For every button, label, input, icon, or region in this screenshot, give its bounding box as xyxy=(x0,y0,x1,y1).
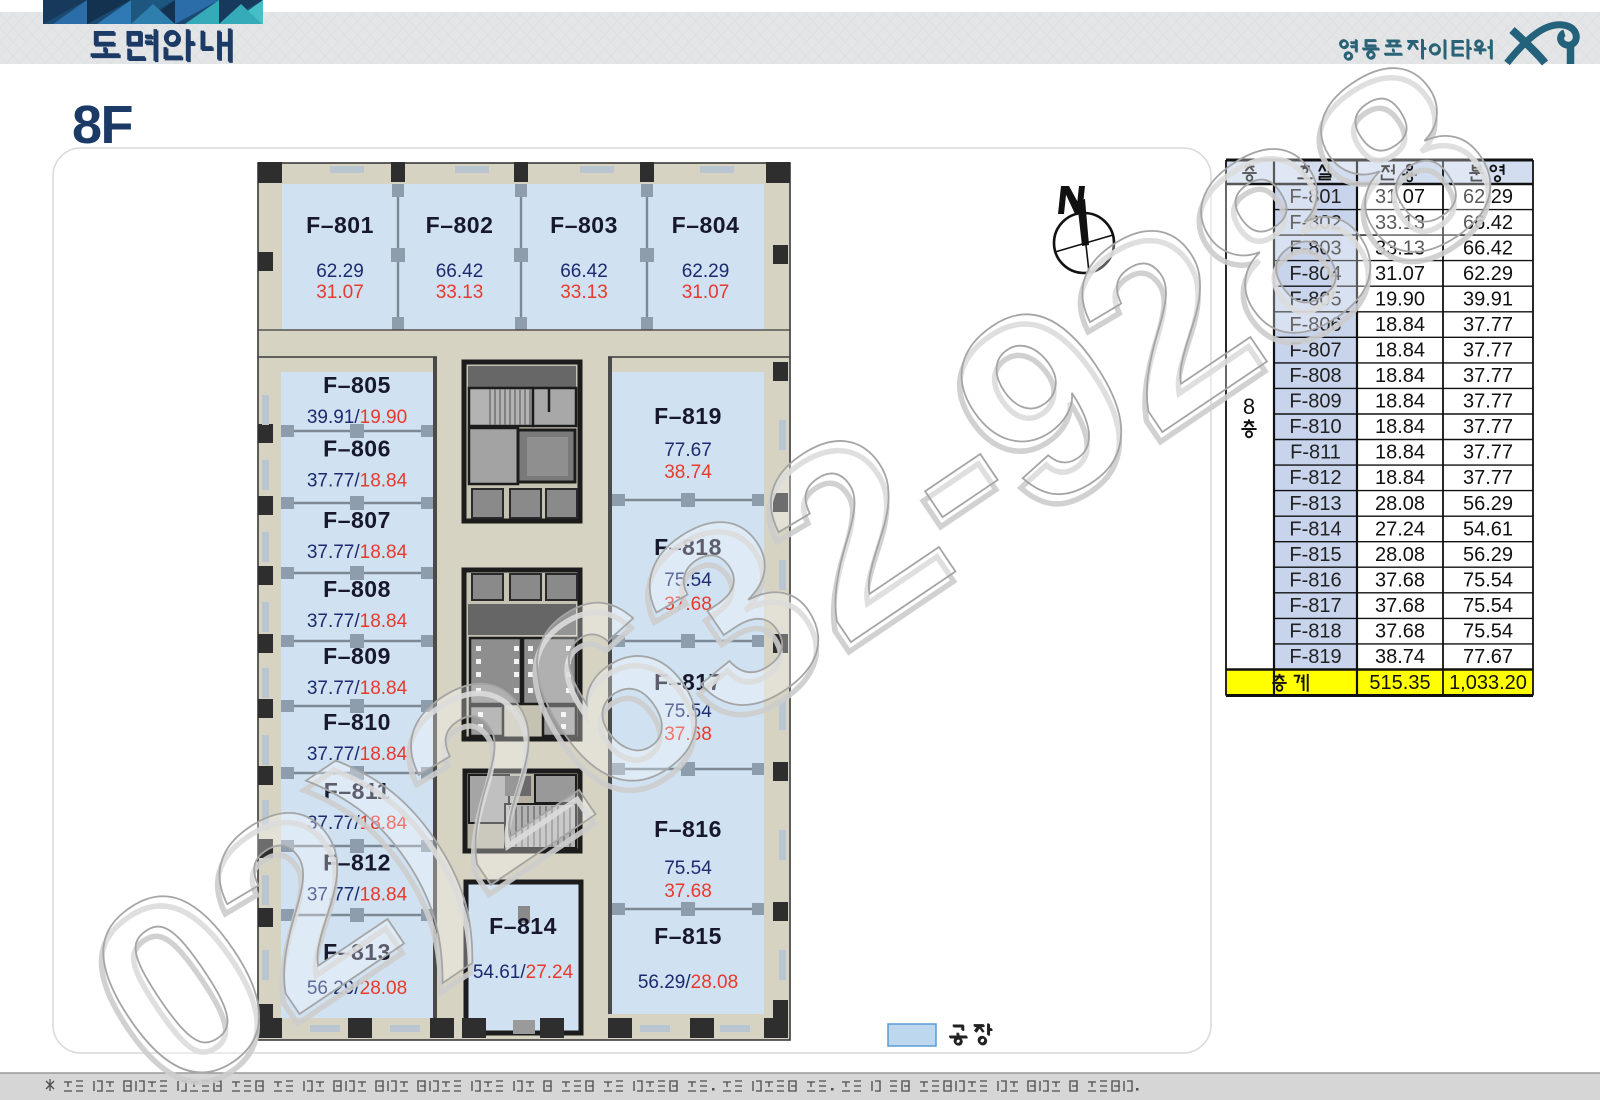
svg-text:18.84: 18.84 xyxy=(1375,442,1425,464)
svg-text:56.29: 56.29 xyxy=(1463,493,1513,515)
svg-text:F–805: F–805 xyxy=(323,372,391,398)
svg-text:37.68: 37.68 xyxy=(1375,595,1425,617)
svg-text:F-816: F-816 xyxy=(1289,570,1341,592)
svg-text:37.77: 37.77 xyxy=(1463,391,1513,413)
svg-text:75.54: 75.54 xyxy=(1463,595,1513,617)
svg-text:56.29/28.08: 56.29/28.08 xyxy=(638,972,738,993)
svg-text:F-810: F-810 xyxy=(1289,416,1341,438)
svg-text:37.77: 37.77 xyxy=(1463,467,1513,489)
svg-text:37.77: 37.77 xyxy=(1463,340,1513,362)
svg-text:18.84: 18.84 xyxy=(1375,467,1425,489)
svg-text:37.77: 37.77 xyxy=(1463,365,1513,387)
svg-text:515.35: 515.35 xyxy=(1369,672,1430,694)
svg-text:75.54: 75.54 xyxy=(664,858,712,879)
svg-text:54.61/27.24: 54.61/27.24 xyxy=(473,962,574,983)
svg-text:75.54: 75.54 xyxy=(1463,621,1513,643)
svg-text:18.84: 18.84 xyxy=(1375,416,1425,438)
svg-text:8F: 8F xyxy=(72,95,133,155)
svg-text:F-813: F-813 xyxy=(1289,493,1341,515)
svg-text:54.61: 54.61 xyxy=(1463,518,1513,540)
svg-text:37.77: 37.77 xyxy=(1463,416,1513,438)
svg-text:F-812: F-812 xyxy=(1289,467,1341,489)
svg-text:31.07: 31.07 xyxy=(316,282,364,303)
svg-text:33.13: 33.13 xyxy=(436,282,484,303)
svg-text:37.68: 37.68 xyxy=(664,881,712,902)
svg-text:56.29: 56.29 xyxy=(1463,544,1513,566)
svg-text:28.08: 28.08 xyxy=(1375,493,1425,515)
svg-text:F-811: F-811 xyxy=(1290,442,1341,464)
svg-text:27.24: 27.24 xyxy=(1375,518,1425,540)
svg-text:F–802: F–802 xyxy=(426,212,494,238)
svg-text:37.77/18.84: 37.77/18.84 xyxy=(307,470,408,491)
svg-text:37.68: 37.68 xyxy=(1375,621,1425,643)
svg-text:F–806: F–806 xyxy=(323,435,391,461)
svg-text:F–808: F–808 xyxy=(323,576,391,602)
svg-text:F–801: F–801 xyxy=(306,212,374,238)
svg-text:F–804: F–804 xyxy=(672,212,740,238)
svg-text:75.54: 75.54 xyxy=(1463,570,1513,592)
svg-text:66.42: 66.42 xyxy=(560,261,608,282)
svg-text:F-817: F-817 xyxy=(1289,595,1341,617)
svg-text:37.77/18.84: 37.77/18.84 xyxy=(307,542,408,563)
svg-text:66.42: 66.42 xyxy=(436,261,484,282)
svg-text:62.29: 62.29 xyxy=(682,261,730,282)
svg-text:28.08: 28.08 xyxy=(1375,544,1425,566)
svg-text:F–819: F–819 xyxy=(654,403,722,429)
svg-text:F–803: F–803 xyxy=(550,212,618,238)
svg-text:F–807: F–807 xyxy=(323,507,391,533)
svg-text:1,033.20: 1,033.20 xyxy=(1449,672,1527,694)
svg-text:33.13: 33.13 xyxy=(560,282,608,303)
svg-text:37.77: 37.77 xyxy=(1463,314,1513,336)
svg-text:F-818: F-818 xyxy=(1289,621,1341,643)
svg-text:31.07: 31.07 xyxy=(682,282,730,303)
svg-text:37.68: 37.68 xyxy=(1375,570,1425,592)
svg-text:18.84: 18.84 xyxy=(1375,365,1425,387)
svg-text:77.67: 77.67 xyxy=(1463,646,1513,668)
svg-text:37.77: 37.77 xyxy=(1463,442,1513,464)
svg-text:F-819: F-819 xyxy=(1289,646,1341,668)
svg-text:F-814: F-814 xyxy=(1289,518,1341,540)
svg-text:F-815: F-815 xyxy=(1289,544,1341,566)
svg-text:F–815: F–815 xyxy=(654,923,722,949)
svg-text:38.74: 38.74 xyxy=(1375,646,1425,668)
svg-text:62.29: 62.29 xyxy=(316,261,364,282)
svg-text:18.84: 18.84 xyxy=(1375,391,1425,413)
svg-text:37.77/18.84: 37.77/18.84 xyxy=(307,611,408,632)
